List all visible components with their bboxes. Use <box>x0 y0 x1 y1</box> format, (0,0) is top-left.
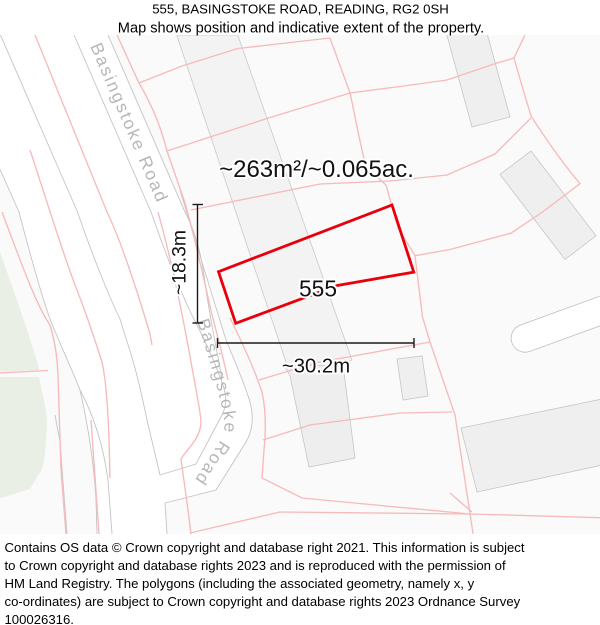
svg-text:555, BASINGSTOKE ROAD, READING: 555, BASINGSTOKE ROAD, READING, RG2 0SH <box>152 1 449 16</box>
svg-text:HM Land Registry. The polygons: HM Land Registry. The polygons (includin… <box>5 576 475 591</box>
svg-text:~30.2m: ~30.2m <box>282 356 350 378</box>
svg-text:100026316.: 100026316. <box>5 612 74 625</box>
svg-text:~263m²/~0.065ac.: ~263m²/~0.065ac. <box>219 156 414 183</box>
svg-text:to Crown copyright and databas: to Crown copyright and database rights 2… <box>5 558 506 573</box>
svg-text:Map shows position and indicat: Map shows position and indicative extent… <box>118 20 484 36</box>
svg-text:~18.3m: ~18.3m <box>169 230 191 295</box>
svg-text:co-ordinates) are subject to C: co-ordinates) are subject to Crown copyr… <box>5 594 521 609</box>
svg-text:555: 555 <box>299 276 337 302</box>
svg-text:Contains OS data © Crown copyr: Contains OS data © Crown copyright and d… <box>5 540 525 555</box>
